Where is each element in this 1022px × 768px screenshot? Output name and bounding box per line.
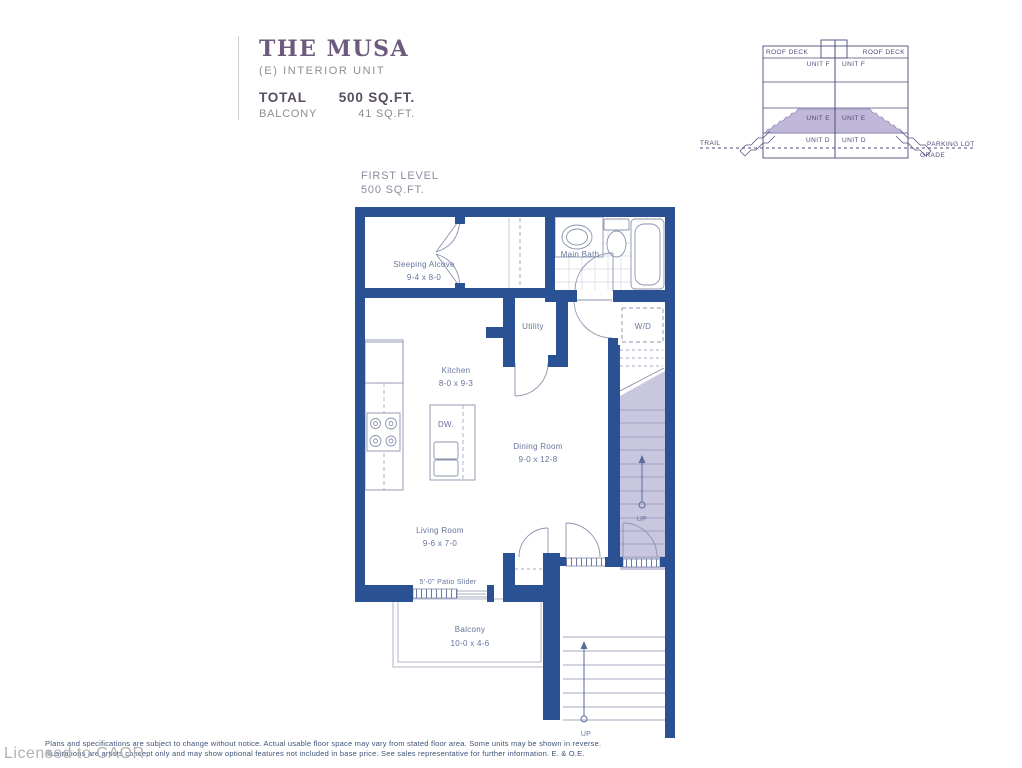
door-threshold bbox=[566, 558, 606, 566]
wd-label: W/D bbox=[635, 322, 651, 331]
entry-threshold bbox=[623, 559, 660, 567]
patio-slider bbox=[413, 589, 490, 598]
fridge bbox=[365, 342, 403, 383]
exterior-up-label: UP bbox=[581, 731, 591, 738]
utility-label: Utility bbox=[522, 322, 544, 331]
roof-deck-right-label: ROOF DECK bbox=[863, 49, 906, 56]
wd-hall-door bbox=[574, 300, 612, 338]
dining-room-dims: 9-0 x 12-8 bbox=[518, 455, 557, 464]
plan-canvas: ROOF DECK ROOF DECK UNIT F UNIT F UNIT E… bbox=[0, 0, 1022, 768]
unit-d-left-label: UNIT D bbox=[806, 137, 830, 144]
exterior-up-arrow bbox=[581, 641, 588, 722]
unit-e-left-label: UNIT E bbox=[806, 115, 830, 122]
dining-room-label: Dining Room bbox=[513, 442, 563, 451]
kitchen-dims: 8-0 x 9-3 bbox=[439, 379, 474, 388]
utility-door bbox=[515, 363, 548, 396]
disclaimer-line1: Plans and specifications are subject to … bbox=[45, 739, 985, 749]
floorplan-sheet: THE MUSA (E) INTERIOR UNIT TOTAL 500 SQ.… bbox=[0, 0, 1022, 768]
interior-up-label: UP bbox=[637, 516, 647, 523]
unit-d-right-label: UNIT D bbox=[842, 137, 866, 144]
disclaimer: Plans and specifications are subject to … bbox=[45, 739, 985, 759]
balcony-dims: 10-0 x 4-6 bbox=[450, 639, 489, 648]
roof-deck-left-label: ROOF DECK bbox=[766, 49, 809, 56]
unit-e-right-label: UNIT E bbox=[842, 115, 866, 122]
living-room-dims: 9-6 x 7-0 bbox=[423, 539, 458, 548]
living-room-label: Living Room bbox=[416, 526, 464, 535]
trail-label: TRAIL bbox=[700, 140, 720, 147]
stove bbox=[367, 413, 400, 451]
building-cross-section: ROOF DECK ROOF DECK UNIT F UNIT F UNIT E… bbox=[700, 40, 975, 159]
left-step-flourish bbox=[740, 131, 775, 156]
kitchen-label: Kitchen bbox=[442, 366, 471, 375]
balcony-label: Balcony bbox=[455, 625, 486, 634]
sleeping-alcove-dims: 9-4 x 8-0 bbox=[407, 273, 442, 282]
unit-f-left-label: UNIT F bbox=[807, 61, 830, 68]
roof-bulkhead bbox=[821, 40, 847, 58]
main-bath-label: Main Bath bbox=[561, 250, 600, 259]
sleeping-alcove-label: Sleeping Alcove bbox=[393, 260, 455, 269]
unit-e-highlight bbox=[765, 109, 903, 133]
kitchen-island bbox=[430, 405, 475, 480]
dishwasher-label: DW. bbox=[438, 420, 454, 429]
grade-label: GRADE bbox=[920, 152, 945, 159]
exterior-stair-treads bbox=[563, 637, 665, 720]
stairs-above-dashed bbox=[614, 350, 663, 366]
parking-lot-label: PARKING LOT bbox=[927, 141, 975, 148]
toilet-tank bbox=[604, 219, 629, 230]
disclaimer-line2: Illustrations are artists concept only a… bbox=[45, 749, 985, 759]
license-watermark: Licensed to CAOR bbox=[4, 745, 145, 763]
floor-plan: Sleeping Alcove 9-4 x 8-0 Main Bath Util… bbox=[355, 207, 675, 738]
unit-f-right-label: UNIT F bbox=[842, 61, 865, 68]
patio-slider-label: 5'-0" Patio Slider bbox=[419, 579, 476, 586]
